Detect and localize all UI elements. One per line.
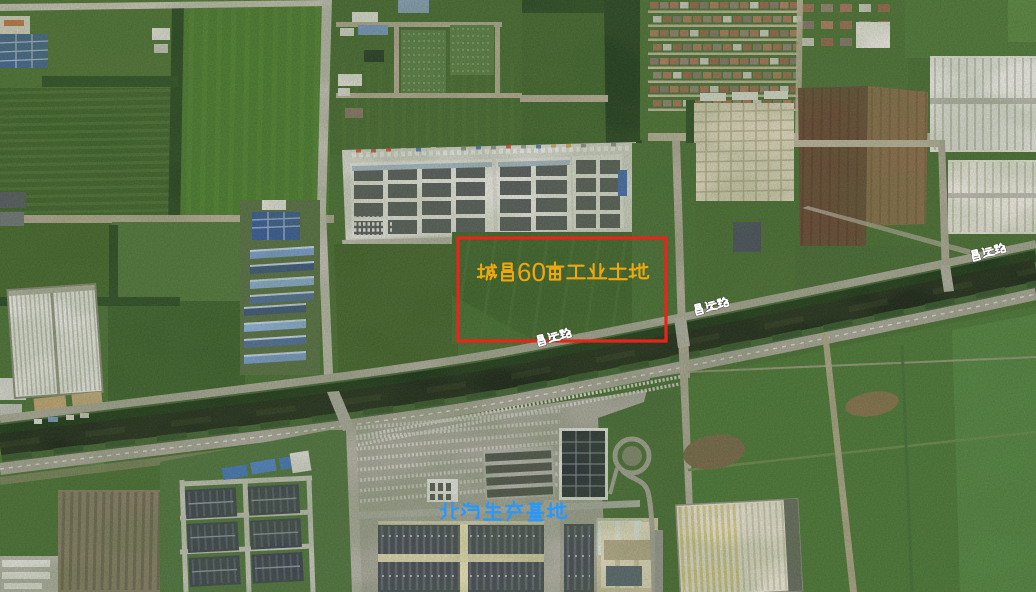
svg-text:60: 60 [517,257,546,287]
